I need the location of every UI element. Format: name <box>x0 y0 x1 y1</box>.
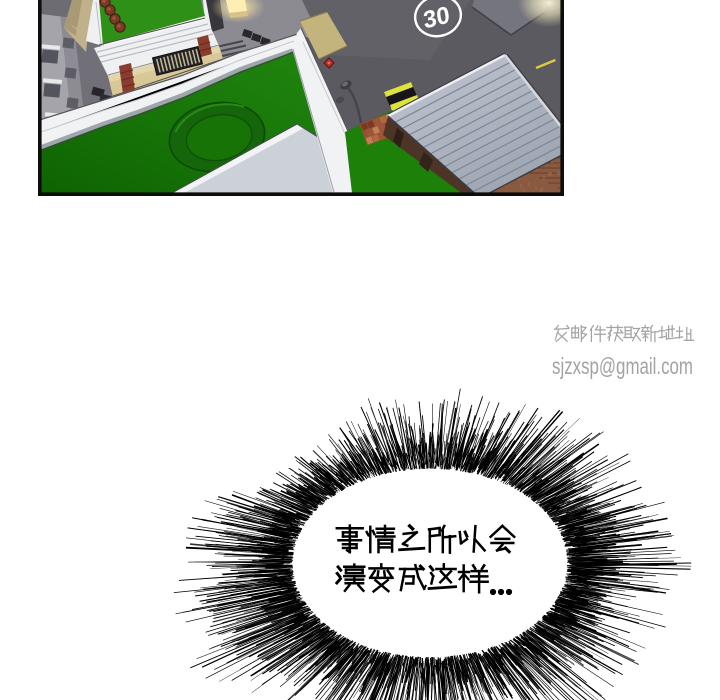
svg-text:sjzxsp@gmail.com: sjzxsp@gmail.com <box>552 353 693 379</box>
